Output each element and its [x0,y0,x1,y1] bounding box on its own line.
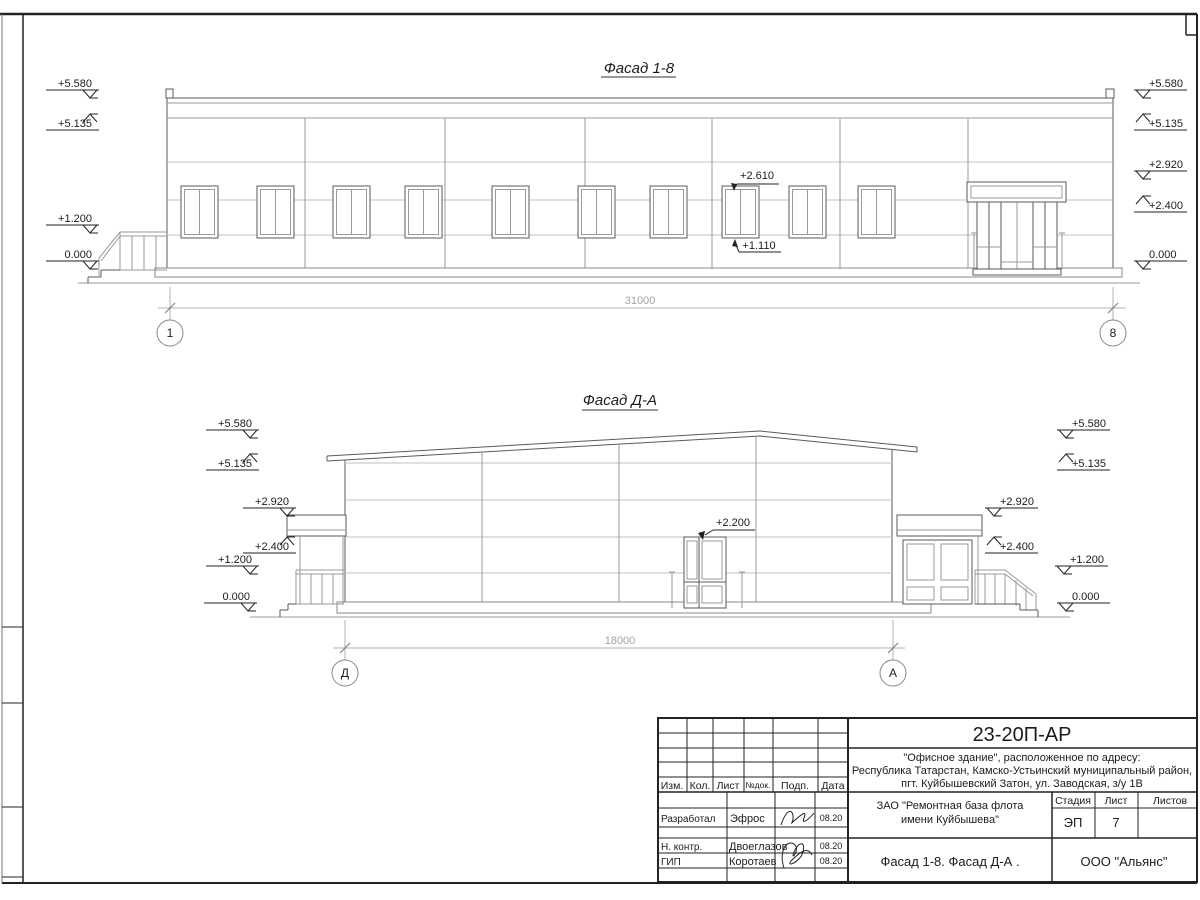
elevation-mark: +2.920 [1149,159,1183,171]
signer-role: ГИП [661,857,681,868]
elevation-mark: +5.580 [1072,418,1106,430]
stage-value: ЭП [1064,815,1083,830]
facade-d-a-annex-right [897,515,1038,617]
signer-role: Разработал [661,813,716,825]
sheet-title: Фасад 1-8. Фасад Д-А . [880,854,1019,869]
window [257,186,294,238]
client-line: имени Куйбышева" [901,814,999,826]
window [789,186,826,238]
elevation-mark: +5.135 [58,118,92,130]
window-sill-mark: +1.110 [732,239,781,252]
signer-date: 08.20 [820,856,843,866]
rev-header: Изм. [661,780,684,792]
rev-header: №док. [746,780,771,790]
window [722,186,759,238]
signature [781,811,814,825]
window [858,186,895,238]
facade-1-8-axes: 1 8 [157,320,1126,346]
elevation-mark: +5.580 [218,418,252,430]
window [333,186,370,238]
project-line: Республика Татарстан, Камско-Устьинский … [852,765,1192,777]
signer-date: 08.20 [820,813,843,823]
elevation-mark: +1.200 [58,213,92,225]
window [578,186,615,238]
facade-1-8-dimension: 31000 [158,287,1126,320]
signers-table: Разработал Эфрос 08.20 Н. контр. Двоегла… [658,792,848,882]
facade-d-a: Фасад Д-А [204,392,1110,686]
plinth [337,602,931,613]
elevation-mark: +1.200 [218,554,252,566]
facade-d-a-annex-left [280,515,346,617]
rev-header: Подп. [781,780,809,792]
elevation-mark: +5.135 [218,458,252,470]
facade-d-a-title: Фасад Д-А [583,392,657,409]
facade-1-8-windows [181,186,895,238]
title-block: Изм. Кол. Лист №док. Подп. Дата Разработ… [658,718,1197,882]
sheet-value: 7 [1112,815,1119,830]
elevation-mark: 0.000 [1149,249,1177,261]
elevation-mark: +2.920 [1000,496,1034,508]
client-line: ЗАО "Ремонтная база флота [877,800,1025,812]
rev-header: Лист [717,780,740,792]
organization: ООО "Альянс" [1081,854,1168,869]
signer-role: Н. контр. [661,842,702,853]
elevation-mark: +5.580 [58,78,92,90]
elevation-mark: 0.000 [64,249,92,261]
window [405,186,442,238]
facade-1-8: Фасад 1-8 [46,60,1187,346]
drawing-sheet: Фасад 1-8 [0,0,1200,900]
facade-d-a-marks-left: +5.580 +5.135 +2.920 +2.400 +1.200 0.000 [204,418,296,611]
facade-1-8-entrance [967,182,1066,275]
window [650,186,687,238]
facade-d-a-dimension: 18000 [333,620,905,660]
signer-name: Коротаев [729,856,777,868]
rev-header: Кол. [690,780,711,792]
signer-date: 08.20 [820,841,843,851]
facade-d-a-axes: Д А [332,660,906,686]
axis-bubble: Д [341,666,349,680]
facade-1-8-marks-left: +5.580 +5.135 +1.200 0.000 [46,78,99,269]
facade-d-a-marks-right: +5.580 +5.135 +2.920 +2.400 +1.200 0.000 [985,418,1110,611]
elevation-mark: +2.400 [1149,200,1183,212]
facade-1-8-title: Фасад 1-8 [604,60,675,77]
main-stamp: 23-20П-АР "Офисное здание", расположенно… [848,724,1197,882]
elevation-mark: +5.580 [1149,78,1183,90]
elevation-mark: +2.920 [255,496,289,508]
elevation-mark: 0.000 [222,591,250,603]
sheet-label: Лист [1105,795,1128,807]
elevation-mark: +5.135 [1072,458,1106,470]
format-box [1186,14,1197,35]
signer-name: Двоеглазов [729,841,788,853]
window [181,186,218,238]
elevation-mark: +2.400 [255,541,289,553]
project-line: "Офисное здание", расположенное по адрес… [903,752,1140,764]
window [492,186,529,238]
elevation-mark: +2.400 [1000,541,1034,553]
stage-label: Стадия [1055,795,1091,807]
sheets-label: Листов [1153,795,1188,807]
dimension-value: 31000 [625,295,656,307]
document-number: 23-20П-АР [973,724,1072,746]
svg-text:+2.200: +2.200 [716,517,750,529]
axis-bubble: 1 [167,326,174,340]
elevation-mark: +1.200 [1070,554,1104,566]
elevation-mark: +5.135 [1149,118,1183,130]
axis-bubble: 8 [1110,326,1117,340]
facade-1-8-marks-right: +5.580 +5.135 +2.920 +2.400 0.000 [1134,78,1187,269]
axis-bubble: А [889,666,897,680]
elevation-mark: 0.000 [1072,591,1100,603]
rev-header: Дата [821,780,844,792]
dimension-value: 18000 [605,635,636,647]
signer-name: Эфрос [730,813,765,825]
project-line: пгт. Куйбышевский Затон, ул. Заводская, … [901,778,1143,790]
svg-text:+2.610: +2.610 [740,170,774,182]
left-margin-cells [2,627,23,877]
svg-text:+1.110: +1.110 [742,240,775,252]
